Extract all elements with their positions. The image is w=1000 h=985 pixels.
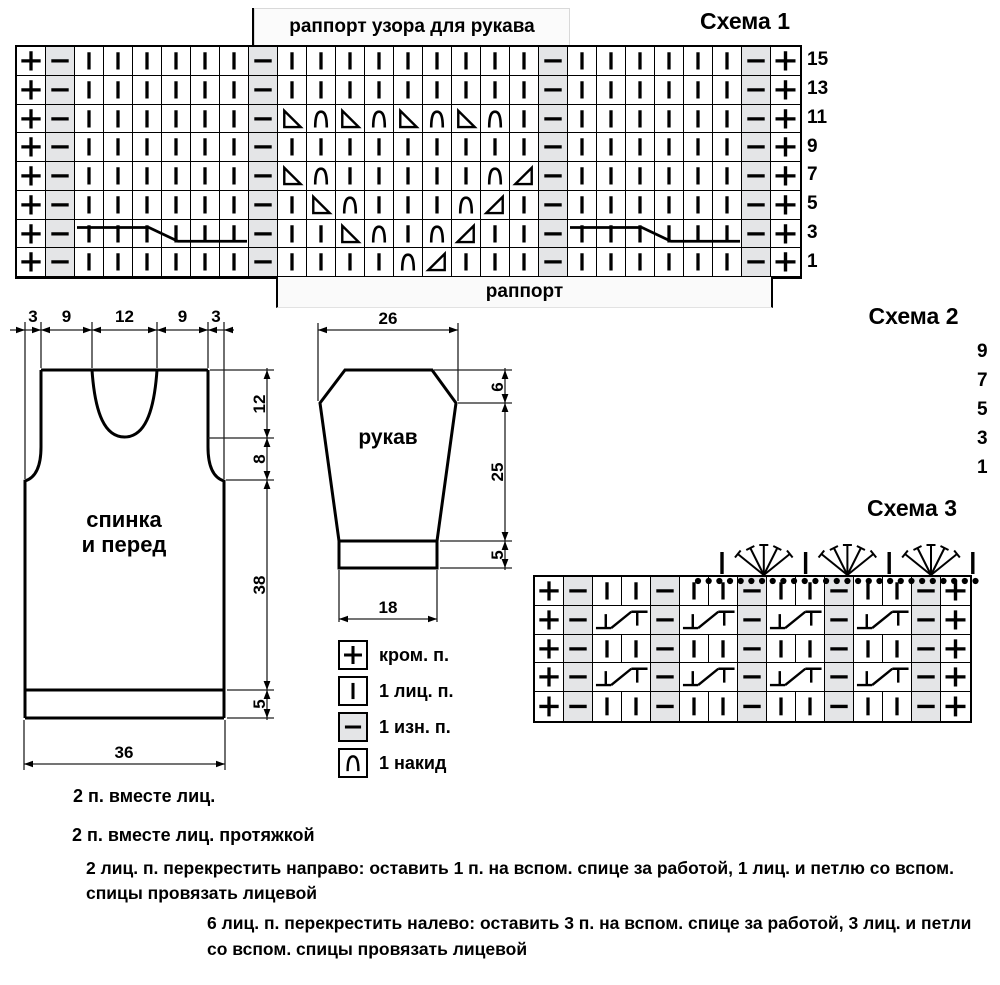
edge-stitch-icon	[535, 635, 563, 663]
cell-knit-stitch	[220, 133, 249, 162]
knit-stitch-icon	[655, 133, 683, 161]
chain-dot-icon	[930, 578, 936, 584]
knit-stitch-icon	[278, 220, 306, 248]
knit-stitch-icon	[767, 692, 795, 721]
cell-purl-stitch	[539, 248, 568, 277]
cross-2-right-icon	[767, 663, 824, 691]
purl-stitch-icon	[249, 47, 277, 75]
knit-stitch-icon	[191, 76, 219, 104]
chain-dot-icon	[738, 578, 744, 584]
cell-knit-stitch	[365, 76, 394, 105]
purl-stitch-icon	[651, 606, 679, 634]
cell-knit-stitch	[713, 76, 742, 105]
knit-stitch-icon	[394, 133, 422, 161]
knit-stitch-icon	[452, 248, 480, 276]
knit-stitch-icon	[452, 47, 480, 75]
chain-dot-icon	[716, 578, 722, 584]
chain-dot-icon	[940, 578, 946, 584]
knit-stitch-icon	[336, 76, 364, 104]
cell-knit-stitch	[365, 47, 394, 76]
knit-stitch-icon	[75, 220, 103, 248]
legend-ssk-label: 2 п. вместе лиц. протяжкой	[72, 820, 315, 850]
edge-stitch-icon	[941, 606, 970, 634]
knit-stitch-icon	[220, 191, 248, 219]
knit-stitch-icon	[713, 105, 741, 133]
edge-stitch-icon	[535, 692, 563, 721]
schema2-title: Схема 2	[856, 303, 971, 330]
knit-stitch-icon	[75, 76, 103, 104]
row-number: 5	[800, 190, 840, 219]
knit-stitch-icon	[394, 220, 422, 248]
cell-knit-stitch	[655, 105, 684, 134]
cell-knit-stitch	[593, 635, 622, 664]
purl-stitch-icon	[825, 663, 853, 691]
cell-purl-stitch	[738, 663, 767, 692]
body-top-dim-5: 3	[211, 307, 220, 326]
cell-knit-stitch	[709, 635, 738, 664]
cell-knit-stitch	[568, 105, 597, 134]
knit-stitch-icon	[626, 162, 654, 190]
knit-stitch-icon	[655, 191, 683, 219]
purl-stitch-icon	[249, 220, 277, 248]
cell-knit-stitch	[365, 191, 394, 220]
cell-knit-stitch	[510, 248, 539, 277]
cell-cross-2-right	[593, 663, 651, 692]
cell-purl-stitch	[46, 191, 75, 220]
cell-edge-stitch	[771, 248, 800, 277]
knit-stitch-icon	[684, 248, 712, 276]
schema1-chart	[15, 45, 802, 279]
knit-stitch-icon	[452, 162, 480, 190]
ssk-icon	[510, 162, 538, 190]
cell-knit-stitch	[336, 248, 365, 277]
knit-stitch-icon	[452, 133, 480, 161]
knit-stitch-icon	[75, 133, 103, 161]
purl-stitch-icon	[539, 133, 567, 161]
cell-purl-stitch	[249, 162, 278, 191]
knit-stitch-icon	[162, 162, 190, 190]
cell-purl-stitch	[46, 248, 75, 277]
cell-knit-stitch	[568, 76, 597, 105]
ssk-icon	[481, 191, 509, 219]
knit-stitch-icon	[510, 105, 538, 133]
purl-stitch-icon	[564, 692, 592, 721]
cell-knit-stitch	[510, 191, 539, 220]
garment-schematics: 3 9 12 9 3 12 8 38 5 36 спинка и перед 2…	[0, 300, 530, 785]
row-number: 3	[970, 424, 996, 453]
knit-stitch-icon	[104, 248, 132, 276]
edge-stitch-icon	[771, 248, 800, 276]
purl-stitch-icon	[539, 76, 567, 104]
knit-stitch-icon	[220, 105, 248, 133]
cell-edge-stitch	[771, 191, 800, 220]
knit-stitch-icon	[307, 47, 335, 75]
ssk-icon	[452, 220, 480, 248]
cell-purl-stitch	[539, 162, 568, 191]
knit-stitch-icon	[796, 692, 824, 721]
schema2-chart	[533, 575, 972, 723]
cell-knit-stitch	[883, 692, 912, 721]
chart-row	[17, 47, 800, 76]
knit-stitch-icon	[854, 635, 882, 663]
cell-purl-stitch	[539, 133, 568, 162]
cell-purl-stitch	[539, 105, 568, 134]
cell-knit-stitch	[394, 133, 423, 162]
cell-cross-2-right	[767, 606, 825, 635]
edge-stitch-icon	[535, 663, 563, 691]
cell-purl-stitch	[564, 692, 593, 721]
cell-knit-stitch	[307, 248, 336, 277]
knit-stitch-icon	[568, 162, 596, 190]
knit-stitch-icon	[597, 220, 625, 248]
cell-purl-stitch	[564, 606, 593, 635]
cell-knit-stitch	[75, 220, 104, 249]
cell-edge-stitch	[535, 577, 564, 606]
purl-stitch-icon	[651, 577, 679, 605]
cell-knit-stitch	[713, 105, 742, 134]
cell-knit-stitch	[307, 133, 336, 162]
cell-purl-stitch	[738, 635, 767, 664]
purl-stitch-icon	[46, 248, 74, 276]
sleeve-right-dim-1: 6	[488, 382, 507, 391]
k2tog-icon	[307, 191, 335, 219]
cell-knit-stitch	[75, 76, 104, 105]
cell-knit-stitch	[104, 162, 133, 191]
cell-knit-stitch	[278, 248, 307, 277]
cell-knit-stitch	[655, 76, 684, 105]
cell-knit-stitch	[162, 133, 191, 162]
row-number: 1	[970, 453, 996, 482]
purl-stitch-icon	[539, 105, 567, 133]
cell-edge-stitch	[17, 47, 46, 76]
cell-purl-stitch	[912, 635, 941, 664]
cell-knit-stitch	[162, 76, 191, 105]
chain-dot-icon	[951, 578, 957, 584]
knit-stitch-icon	[162, 47, 190, 75]
knit-stitch-icon	[162, 220, 190, 248]
purl-stitch-icon	[249, 133, 277, 161]
cell-knit-stitch	[104, 191, 133, 220]
cell-knit-stitch	[452, 47, 481, 76]
knit-stitch-icon	[713, 220, 741, 248]
purl-stitch-icon	[564, 606, 592, 634]
knit-stitch-icon	[394, 47, 422, 75]
knit-stitch-icon	[278, 133, 306, 161]
knit-stitch-icon	[481, 248, 509, 276]
knit-stitch-icon	[568, 76, 596, 104]
cell-knit-stitch	[597, 220, 626, 249]
knit-stitch-icon	[365, 76, 393, 104]
purl-stitch-icon	[249, 105, 277, 133]
chain-dot-icon	[908, 578, 914, 584]
cell-purl-stitch	[912, 606, 941, 635]
cell-knit-stitch	[162, 105, 191, 134]
chain-dot-icon	[919, 578, 925, 584]
cell-knit-stitch	[713, 191, 742, 220]
cell-edge-stitch	[771, 105, 800, 134]
cell-knit-stitch	[423, 47, 452, 76]
cell-knit-stitch	[394, 162, 423, 191]
cell-knit-stitch	[680, 635, 709, 664]
edge-stitch-icon	[535, 606, 563, 634]
cell-knit-stitch	[307, 47, 336, 76]
cell-knit-stitch	[684, 248, 713, 277]
knit-stitch-icon	[684, 162, 712, 190]
row-number: 5	[970, 396, 996, 425]
purl-stitch-icon	[742, 76, 770, 104]
cell-edge-stitch	[535, 692, 564, 721]
cell-knit-stitch	[162, 248, 191, 277]
purl-stitch-icon	[539, 162, 567, 190]
cell-cross-2-right	[593, 606, 651, 635]
sleeve-outline	[320, 370, 456, 568]
cell-knit-stitch	[394, 191, 423, 220]
cell-knit-stitch	[423, 133, 452, 162]
chart-row	[17, 191, 800, 220]
edge-stitch-icon	[771, 220, 800, 248]
knit-stitch-icon	[854, 692, 882, 721]
cell-knit-stitch	[568, 133, 597, 162]
chart-row	[17, 220, 800, 249]
body-right-dim-1: 12	[250, 395, 269, 414]
cell-knit-stitch	[423, 162, 452, 191]
purl-stitch-icon	[651, 635, 679, 663]
cell-knit-stitch	[104, 47, 133, 76]
purl-stitch-icon	[825, 606, 853, 634]
purl-stitch-icon	[738, 663, 766, 691]
knit-stitch-icon	[510, 248, 538, 276]
cell-knit-stitch	[510, 47, 539, 76]
knit-stitch-icon	[162, 105, 190, 133]
chart-row	[17, 105, 800, 134]
purl-stitch-icon	[738, 606, 766, 634]
knit-stitch-icon	[568, 133, 596, 161]
row-number: 11	[800, 104, 840, 133]
cell-cross-2-right	[680, 606, 738, 635]
cell-cross-2-right	[854, 606, 912, 635]
knit-stitch-icon	[423, 162, 451, 190]
cell-purl-stitch	[742, 162, 771, 191]
cell-purl-stitch	[742, 191, 771, 220]
knit-stitch-icon	[597, 76, 625, 104]
knit-stitch-icon	[626, 191, 654, 219]
fan-ray	[750, 548, 764, 575]
cell-edge-stitch	[535, 663, 564, 692]
cell-knit-stitch	[854, 635, 883, 664]
knit-stitch-icon	[75, 162, 103, 190]
cell-purl-stitch	[46, 105, 75, 134]
knit-stitch-icon	[626, 76, 654, 104]
cell-knit-stitch	[220, 191, 249, 220]
edge-stitch-icon	[17, 191, 45, 219]
schema1-row-numbers: 15131197531	[800, 46, 840, 276]
cell-cross-2-right	[680, 663, 738, 692]
cell-yarn-over	[423, 220, 452, 249]
cell-knit-stitch	[336, 133, 365, 162]
cell-knit-stitch	[597, 133, 626, 162]
knit-stitch-icon	[307, 76, 335, 104]
cell-purl-stitch	[249, 76, 278, 105]
cell-knit-stitch	[626, 220, 655, 249]
cell-edge-stitch	[17, 76, 46, 105]
purl-stitch-icon	[539, 47, 567, 75]
purl-stitch-icon	[564, 635, 592, 663]
cell-knit-stitch	[568, 248, 597, 277]
cell-purl-stitch	[249, 220, 278, 249]
cell-knit-stitch	[452, 76, 481, 105]
knit-stitch-icon	[713, 76, 741, 104]
cell-knit-stitch	[220, 248, 249, 277]
cell-knit-stitch	[133, 47, 162, 76]
cell-purl-stitch	[564, 663, 593, 692]
cell-k2tog	[394, 105, 423, 134]
cell-knit-stitch	[684, 162, 713, 191]
cell-knit-stitch	[622, 635, 651, 664]
cell-purl-stitch	[651, 635, 680, 664]
legend-k2tog-label: 2 п. вместе лиц.	[73, 781, 215, 811]
knit-stitch-icon	[104, 162, 132, 190]
cell-knit-stitch	[481, 47, 510, 76]
edge-stitch-icon	[771, 76, 800, 104]
cell-knit-stitch	[278, 191, 307, 220]
body-top-dim-1: 3	[28, 307, 37, 326]
knit-stitch-icon	[622, 577, 650, 605]
cell-purl-stitch	[738, 606, 767, 635]
purl-stitch-icon	[742, 105, 770, 133]
cell-purl-stitch	[742, 76, 771, 105]
cell-knit-stitch	[220, 220, 249, 249]
cell-knit-stitch	[684, 220, 713, 249]
cell-knit-stitch	[713, 133, 742, 162]
cell-purl-stitch	[651, 606, 680, 635]
cell-knit-stitch	[191, 248, 220, 277]
knit-stitch-icon	[423, 191, 451, 219]
knit-stitch-icon	[510, 47, 538, 75]
purl-stitch-icon	[742, 133, 770, 161]
purl-stitch-icon	[46, 162, 74, 190]
knit-stitch-icon	[568, 220, 596, 248]
cell-knit-stitch	[510, 105, 539, 134]
purl-stitch-icon	[249, 248, 277, 276]
knit-stitch-icon	[626, 105, 654, 133]
cell-purl-stitch	[539, 220, 568, 249]
yarn-over-icon	[307, 162, 335, 190]
chart-row	[17, 248, 800, 277]
cell-edge-stitch	[771, 47, 800, 76]
chart-row	[17, 133, 800, 162]
knit-stitch-icon	[307, 133, 335, 161]
cell-yarn-over	[481, 162, 510, 191]
cell-knit-stitch	[767, 692, 796, 721]
body-top-dim-2: 9	[62, 307, 71, 326]
knit-stitch-icon	[336, 162, 364, 190]
cell-knit-stitch	[593, 577, 622, 606]
knit-stitch-icon	[104, 47, 132, 75]
fan-ray	[918, 548, 932, 575]
chain-dot-icon	[759, 578, 765, 584]
schema3-title: Схема 3	[853, 495, 971, 522]
cell-edge-stitch	[17, 133, 46, 162]
fan-ray	[834, 548, 848, 575]
knit-stitch-icon	[133, 105, 161, 133]
cell-knit-stitch	[133, 76, 162, 105]
knit-stitch-icon	[655, 105, 683, 133]
knit-stitch-icon	[394, 191, 422, 219]
cell-edge-stitch	[17, 162, 46, 191]
cell-purl-stitch	[539, 47, 568, 76]
purl-stitch-icon	[742, 162, 770, 190]
knit-stitch-icon	[336, 248, 364, 276]
row-number: 9	[970, 338, 996, 367]
knit-stitch-icon	[191, 162, 219, 190]
cell-knit-stitch	[133, 133, 162, 162]
sleeve-right-dim-2: 25	[488, 463, 507, 482]
cell-knit-stitch	[75, 105, 104, 134]
knit-stitch-icon	[191, 47, 219, 75]
cell-purl-stitch	[912, 692, 941, 721]
knit-stitch-icon	[626, 220, 654, 248]
fan-ray	[847, 554, 873, 575]
knit-stitch-icon	[423, 76, 451, 104]
cell-knit-stitch	[622, 692, 651, 721]
chart-row	[535, 606, 970, 635]
cell-yarn-over	[394, 248, 423, 277]
cell-knit-stitch	[626, 133, 655, 162]
cell-knit-stitch	[133, 191, 162, 220]
cell-edge-stitch	[771, 133, 800, 162]
body-right-dim-4: 5	[250, 699, 269, 708]
knit-stitch-icon	[510, 76, 538, 104]
knit-stitch-icon	[336, 133, 364, 161]
cell-purl-stitch	[249, 191, 278, 220]
purl-stitch-icon	[912, 663, 940, 691]
purl-stitch-icon	[539, 248, 567, 276]
purl-stitch-icon	[249, 76, 277, 104]
cell-purl-stitch	[742, 220, 771, 249]
cell-purl-stitch	[825, 606, 854, 635]
fan-ray	[931, 554, 957, 575]
cell-knit-stitch	[854, 692, 883, 721]
knit-stitch-icon	[481, 47, 509, 75]
knit-stitch-icon	[133, 248, 161, 276]
chain-dot-icon	[727, 578, 733, 584]
cell-k2tog	[336, 105, 365, 134]
knit-stitch-icon	[655, 47, 683, 75]
cell-ssk	[423, 248, 452, 277]
knit-stitch-icon	[191, 220, 219, 248]
knit-stitch-icon	[684, 133, 712, 161]
cell-knit-stitch	[655, 191, 684, 220]
chart-row	[17, 76, 800, 105]
cell-knit-stitch	[104, 105, 133, 134]
k2tog-icon	[394, 105, 422, 133]
chain-dot-icon	[834, 578, 840, 584]
row-number: 7	[970, 367, 996, 396]
knitting-pattern-page: раппорт узора для рукава Схема 1 1513119…	[0, 0, 1000, 985]
chain-dot-icon	[962, 578, 968, 584]
chain-dot-icon	[855, 578, 861, 584]
cell-purl-stitch	[742, 105, 771, 134]
cell-knit-stitch	[626, 76, 655, 105]
knit-stitch-icon	[684, 105, 712, 133]
yarn-over-icon	[394, 248, 422, 276]
knit-stitch-icon	[622, 692, 650, 721]
cell-knit-stitch	[796, 692, 825, 721]
knit-stitch-icon	[162, 76, 190, 104]
purl-stitch-icon	[912, 635, 940, 663]
cell-cross-2-right	[854, 663, 912, 692]
cell-purl-stitch	[249, 105, 278, 134]
